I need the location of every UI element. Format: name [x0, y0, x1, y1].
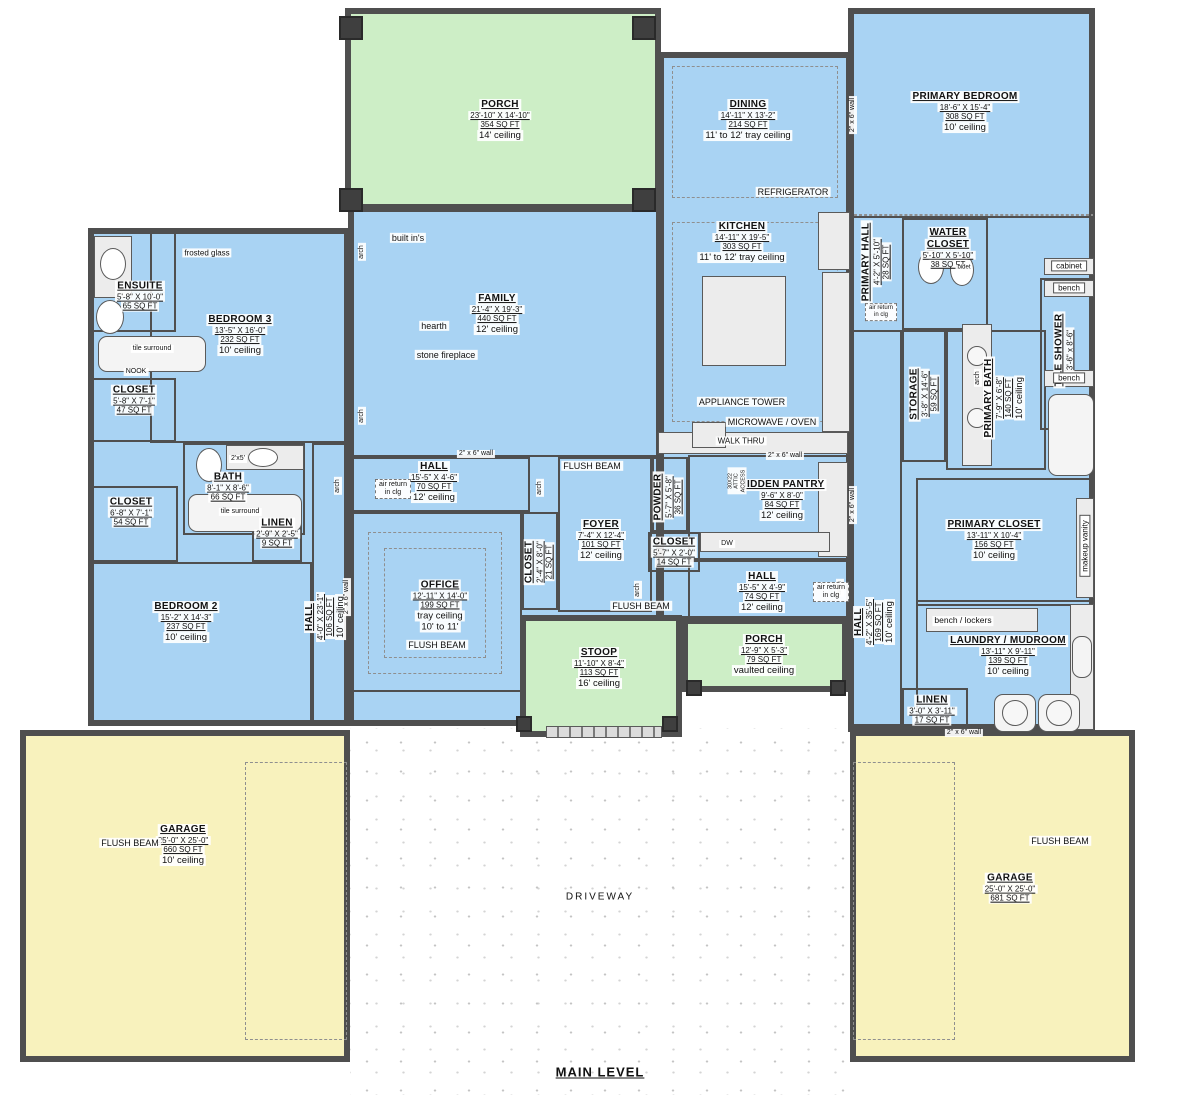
room-sqft: 66 SQ FT [209, 493, 248, 502]
room-ceiling: 10' ceiling [217, 345, 263, 356]
room-dims: 14'-11" X 13'-2" [719, 111, 777, 120]
room-sqft: 660 SQ FT [161, 845, 204, 854]
room-name: BEDROOM 2 [152, 601, 219, 613]
stoop-column-1 [516, 716, 532, 732]
room-sqft: 232 SQ FT [218, 335, 261, 344]
room-name: HALL [853, 606, 865, 638]
room-dims: 8'-1" X 8'-6" [205, 483, 251, 492]
room-sqft: 28 SQ FT [882, 243, 891, 282]
room-label-closet-foyer: CLOSET5'-7" X 2'-0"14 SQ FT [651, 537, 697, 568]
room-name: POWDER [653, 472, 665, 523]
room-dims: 5'-10" X 5'-10" [921, 250, 976, 259]
room-label-primary-closet: PRIMARY CLOSET13'-11" X 10'-4"156 SQ FT1… [945, 519, 1042, 561]
room-label-closet-office: CLOSET2'-4" X 8'-0"21 SQ FT [524, 539, 555, 585]
annotation-bench-upper: bench [1053, 282, 1085, 293]
room-label-hall-far-right: HALL4'-2" X 35'-5"169 SQ FT10' ceiling [853, 597, 895, 647]
kitchen-counter-right-icon [822, 272, 850, 432]
porch-column-4 [632, 188, 656, 212]
annotation-stone-fireplace: stone fireplace [415, 350, 478, 360]
room-name: PRIMARY BEDROOM [910, 91, 1019, 103]
annotation-driveway: DRIVEWAY [564, 891, 636, 903]
room-label-storage: STORAGE3'-8" X 14'-6"59 SQ FT [909, 366, 940, 421]
annotation-air-return-1: air return in clg [375, 479, 411, 499]
room-sqft: 440 SQ FT [475, 314, 518, 323]
room-dims: 2'-4" X 8'-0" [535, 539, 544, 585]
laundry-sink-icon [1072, 636, 1092, 678]
room-label-primary-hall: PRIMARY HALL4'-2" X 5'-10"28 SQ FT [861, 221, 892, 304]
annotation-flush-beam-3: FLUSH BEAM [406, 640, 468, 650]
room-name: CLOSET [108, 497, 154, 509]
porch-lower-column-1 [686, 680, 702, 696]
room-sqft: 237 SQ FT [164, 622, 207, 631]
room-label-family: FAMILY21'-4" X 19'-3"440 SQ FT12' ceilin… [470, 293, 525, 335]
washer-drum-icon [1002, 700, 1028, 726]
room-dims: 12'-9" X 5'-3" [739, 646, 789, 655]
room-name: PORCH [479, 99, 521, 111]
room-dims: 5'-8" X 10'-0" [115, 292, 165, 301]
room-dims: 2'-9" X 2'-5" [254, 529, 300, 538]
stoop-steps-icon [546, 726, 662, 738]
room-sqft: 74 SQ FT [743, 592, 782, 601]
room-sqft: 156 SQ FT [972, 540, 1015, 549]
room-dims: 14'-11" X 19'-5" [713, 233, 771, 242]
room-dims: 4'-2" X 5'-10" [872, 237, 881, 287]
room-ceiling: 10' ceiling [1014, 375, 1025, 421]
room-dims: 11'-10" X 8'-4" [572, 659, 626, 668]
room-sqft: 21 SQ FT [545, 543, 554, 582]
room-ceiling: 16' ceiling [576, 678, 622, 689]
annotation-walk-thru: WALK THRU [716, 436, 767, 445]
dryer-drum-icon [1046, 700, 1072, 726]
annotation-cabinet: cabinet [1051, 260, 1087, 271]
room-label-closet-bedroom3: CLOSET5'-8" X 7'-1"47 SQ FT [111, 385, 157, 416]
room-name: OFFICE [419, 579, 461, 591]
room-label-hall-right: HALL15'-5" X 4'-9"74 SQ FT12' ceiling [737, 571, 787, 613]
room-dims: 5'-8" X 7'-1" [111, 396, 157, 405]
annotation-air-return-2: air return in clg [813, 582, 849, 602]
annotation-flush-beam-2: FLUSH BEAM [610, 601, 672, 611]
room-name: STOOP [579, 647, 619, 659]
room-label-office: OFFICE12'-11" X 14'-0"199 SQ FTtray ceil… [411, 579, 469, 632]
room-name: DINING [728, 99, 769, 111]
room-name: FAMILY [476, 293, 518, 305]
room-name: GARAGE [158, 824, 208, 836]
room-dims: 13'-5" X 16'-0" [213, 326, 268, 335]
annotation-air-return-3: air return in clg [865, 303, 897, 321]
annotation-vanity-size: 2'x5' [229, 455, 247, 463]
room-label-linen-right: LINEN3'-0" X 3'-11"17 SQ FT [907, 695, 957, 726]
room-sqft: 308 SQ FT [943, 112, 986, 121]
room-dims: 7'-9" X 6'-8" [995, 375, 1004, 421]
room-dims: 4'-0" X 23'-1" [316, 592, 325, 642]
annotation-frosted-glass: frosted glass [182, 248, 231, 257]
room-sqft: 36 SQ FT [674, 478, 683, 517]
room-sqft: 9 SQ FT [260, 539, 294, 548]
page-title: MAIN LEVEL [556, 1065, 645, 1080]
annotation-refrigerator: REFRIGERATOR [756, 187, 831, 197]
room-dims: 25'-0" X 25'-0" [156, 836, 211, 845]
room-sqft: 70 SQ FT [415, 482, 454, 491]
annotation-wall-note-1: 2" x 6" wall [457, 450, 495, 458]
room-sqft: 140 SQ FT [1004, 376, 1013, 419]
room-label-bedroom-2: BEDROOM 215'-2" X 14'-3"237 SQ FT10' cei… [152, 601, 219, 643]
room-label-dining: DINING14'-11" X 13'-2"214 SQ FT11' to 12… [703, 99, 792, 141]
room-label-garage-left: GARAGE25'-0" X 25'-0"660 SQ FT10' ceilin… [156, 824, 211, 866]
ensuite-sink-icon [100, 248, 126, 280]
room-dims: 15'-2" X 14'-3" [159, 613, 214, 622]
room-name: CLOSET [925, 239, 971, 251]
room-sqft: 139 SQ FT [986, 656, 1029, 665]
room-name: HALL [746, 571, 778, 583]
room-dims: 15'-5" X 4'-6" [409, 473, 459, 482]
annotation-hearth: hearth [419, 321, 449, 331]
room-dims: 5'-7" X 5'-8" [664, 474, 673, 520]
room-sqft: 47 SQ FT [115, 406, 154, 415]
room-ceiling: 10' ceiling [160, 855, 206, 866]
room-label-kitchen: KITCHEN14'-11" X 19'-5"303 SQ FT11' to 1… [697, 221, 786, 263]
room-name: CLOSET [524, 539, 536, 585]
annotation-wall-note-6: 2" x 6" wall [849, 486, 857, 524]
refrigerator-box-icon [818, 212, 850, 270]
porch-column-3 [339, 188, 363, 212]
room-ceiling: 12' ceiling [759, 510, 805, 521]
room-sqft: 17 SQ FT [913, 716, 952, 725]
room-label-garage-right: GARAGE25'-0" X 25'-0"681 SQ FT [983, 873, 1038, 904]
annotation-wall-note-2: 2" x 6" wall [766, 452, 804, 460]
room-dims: 25'-0" X 25'-0" [983, 884, 1038, 893]
room-dims: 18'-6" X 15'-4" [938, 103, 993, 112]
room-name: WATER [928, 227, 969, 239]
room-label-ensuite: ENSUITE5'-8" X 10'-0"65 SQ FT [115, 281, 165, 312]
room-dims: 23'-10" X 14'-10" [468, 111, 531, 120]
annotation-microwave-oven: MICROWAVE / OVEN [726, 417, 819, 427]
room-label-powder: POWDER5'-7" X 5'-8"36 SQ FT [653, 472, 684, 523]
room-name: BEDROOM 3 [206, 314, 273, 326]
stoop-column-2 [662, 716, 678, 732]
room-ceiling: 10' ceiling [942, 122, 988, 133]
room-dims: 5'-7" X 2'-0" [651, 548, 697, 557]
room-sqft: 59 SQ FT [930, 375, 939, 414]
room-name: PRIMARY CLOSET [945, 519, 1042, 531]
annotation-appliance-tower: APPLIANCE TOWER [697, 397, 787, 407]
room-dims: 13'-11" X 10'-4" [965, 531, 1023, 540]
room-ceiling: 11' to 12' tray ceiling [697, 252, 786, 263]
room-ceiling: 10' ceiling [971, 550, 1017, 561]
room-name: CLOSET [111, 385, 157, 397]
room-bedroom-2 [92, 562, 312, 726]
room-sqft: 303 SQ FT [720, 242, 763, 251]
room-dims: 3'-0" X 3'-11" [907, 706, 957, 715]
room-name: HIDDEN PANTRY [737, 479, 826, 491]
room-sqft: 14 SQ FT [655, 558, 694, 567]
annotation-built-ins: built in's [390, 233, 426, 243]
room-label-foyer: FOYER7'-4" X 12'-4"101 SQ FT12' ceiling [576, 519, 626, 561]
room-name: CLOSET [651, 537, 697, 549]
garage-left-bay [245, 762, 347, 1040]
room-dims: 15'-5" X 4'-9" [737, 583, 787, 592]
room-name: FOYER [581, 519, 621, 531]
garage-right-bay [853, 762, 955, 1040]
room-sqft: 79 SQ FT [745, 655, 784, 664]
room-sqft: 54 SQ FT [112, 518, 151, 527]
room-ceiling: 12' ceiling [739, 602, 785, 613]
room-dims: 13'-11" X 9'-11" [979, 647, 1037, 656]
room-name: LINEN [914, 695, 950, 707]
room-label-hidden-pantry: HIDDEN PANTRY9'-6" X 8'-0"84 SQ FT12' ce… [737, 479, 826, 521]
room-label-hall-top: HALL15'-5" X 4'-6"70 SQ FT12' ceiling [409, 461, 459, 503]
room-ceiling: tray ceiling [415, 610, 464, 621]
kitchen-island-icon [702, 276, 786, 366]
annotation-wall-note-5: 2" x 6" wall [343, 578, 351, 616]
room-sqft: 65 SQ FT [121, 302, 160, 311]
room-ceiling: 11' to 12' tray ceiling [703, 130, 792, 141]
annotation-nook: NOOK [124, 368, 149, 376]
room-sqft: 199 SQ FT [418, 601, 461, 610]
room-sqft: 101 SQ FT [579, 540, 622, 549]
room-ceiling-2: 10' to 11' [419, 621, 460, 632]
room-dims: 6'-8" X 7'-1" [108, 508, 154, 517]
room-name: KITCHEN [717, 221, 768, 233]
room-label-primary-bedroom: PRIMARY BEDROOM18'-6" X 15'-4"308 SQ FT1… [910, 91, 1019, 133]
room-label-hall-left: HALL4'-0" X 23'-1"106 SQ FT10' ceiling [304, 592, 346, 642]
annotation-arch-4: arch [536, 479, 544, 497]
annotation-arch-2: arch [358, 407, 366, 425]
room-ceiling: 10' ceiling [985, 666, 1031, 677]
annotation-bidet: bidet [955, 265, 972, 272]
ensuite-tub-icon [98, 336, 206, 372]
primary-tub-icon [1048, 394, 1094, 476]
room-sqft: 169 SQ FT [874, 600, 883, 643]
room-label-bedroom-3: BEDROOM 313'-5" X 16'-0"232 SQ FT10' cei… [206, 314, 273, 356]
annotation-makeup-vanity: makeup vanity [1079, 515, 1090, 577]
room-name: LAUNDRY / MUDROOM [948, 635, 1068, 647]
room-ceiling: 12' ceiling [474, 324, 520, 335]
room-hall-far-right [848, 330, 902, 726]
porch-column-2 [632, 16, 656, 40]
room-sqft: 84 SQ FT [763, 500, 802, 509]
room-dims: 21'-4" X 19'-3" [470, 305, 525, 314]
room-sqft: 681 SQ FT [988, 894, 1031, 903]
annotation-flush-beam-4: FLUSH BEAM [99, 838, 161, 848]
room-label-porch-lower: PORCH12'-9" X 5'-3"79 SQ FTvaulted ceili… [732, 634, 796, 676]
annotation-bench-lower: bench [1053, 372, 1085, 383]
porch-column-1 [339, 16, 363, 40]
annotation-arch-7: arch [974, 369, 982, 387]
room-sqft: 214 SQ FT [726, 120, 769, 129]
room-name: LINEN [259, 518, 295, 530]
annotation-tile-surround-bath: tile surround [219, 508, 262, 516]
room-label-stoop: STOOP11'-10" X 8'-4"113 SQ FT16' ceiling [572, 647, 626, 689]
room-dims: 9'-6" X 8'-0" [759, 491, 805, 500]
room-name: PORCH [743, 634, 785, 646]
room-label-linen-left: LINEN2'-9" X 2'-5"9 SQ FT [254, 518, 300, 549]
room-name: HALL [304, 601, 316, 633]
room-label-porch-top: PORCH23'-10" X 14'-10"354 SQ FT14' ceili… [468, 99, 531, 141]
annotation-dishwasher: DW [719, 540, 735, 548]
annotation-wall-note-4: 2" x 6" wall [849, 96, 857, 134]
annotation-tile-surround-ensuite: tile surround [131, 345, 174, 353]
annotation-arch-1: arch [358, 243, 366, 261]
room-name: STORAGE [909, 366, 921, 421]
room-dims: 7'-4" X 12'-4" [576, 531, 626, 540]
driveway-area [350, 728, 850, 1095]
room-dims: 3'-6" x 8'-6" [1065, 328, 1074, 372]
room-ceiling: 12' ceiling [578, 550, 624, 561]
room-label-primary-bath: PRIMARY BATH7'-9" X 6'-8"140 SQ FT10' ce… [983, 357, 1025, 440]
room-name: BATH [212, 472, 244, 484]
room-dims: 4'-2" X 35'-5" [865, 597, 874, 647]
room-name: PRIMARY BATH [983, 357, 995, 440]
room-ceiling: 10' ceiling [163, 632, 209, 643]
annotation-flush-beam-1: FLUSH BEAM [561, 461, 623, 471]
room-ceiling: 10' ceiling [884, 599, 895, 645]
room-dims: 12'-11" X 14'-0" [411, 591, 469, 600]
annotation-attic-access: 30X22 ATTIC ACCESS [728, 468, 747, 495]
annotation-arch-5: arch [634, 581, 642, 599]
annotation-arch-3: arch [334, 477, 342, 495]
room-dims: 3'-8" X 14'-6" [920, 369, 929, 419]
bath-sink-icon [248, 448, 278, 467]
room-sqft: 106 SQ FT [325, 595, 334, 638]
room-label-water-closet: WATERCLOSET5'-10" X 5'-10"38 SQ FT [921, 227, 976, 269]
porch-lower-column-2 [830, 680, 846, 696]
room-name: PRIMARY HALL [861, 221, 873, 304]
annotation-bench-lockers: bench / lockers [932, 616, 993, 626]
room-label-closet-hall: CLOSET6'-8" X 7'-1"54 SQ FT [108, 497, 154, 528]
room-label-laundry-mudroom: LAUNDRY / MUDROOM13'-11" X 9'-11"139 SQ … [948, 635, 1068, 677]
room-name: GARAGE [985, 873, 1035, 885]
room-sqft: 113 SQ FT [578, 668, 621, 677]
floor-plan: MAIN LEVEL PORCH23'-10" X 14'-10"354 SQ … [0, 0, 1200, 1103]
annotation-wall-note-3: 2" x 6" wall [945, 729, 983, 737]
annotation-flush-beam-5: FLUSH BEAM [1029, 836, 1091, 846]
room-ceiling: 14' ceiling [477, 130, 523, 141]
room-ceiling: 12' ceiling [411, 492, 457, 503]
room-ceiling: vaulted ceiling [732, 665, 796, 676]
room-name: ENSUITE [115, 281, 164, 293]
room-sqft: 354 SQ FT [478, 120, 521, 129]
room-name: HALL [418, 461, 450, 473]
room-label-bath: BATH8'-1" X 8'-6"66 SQ FT [205, 472, 251, 503]
